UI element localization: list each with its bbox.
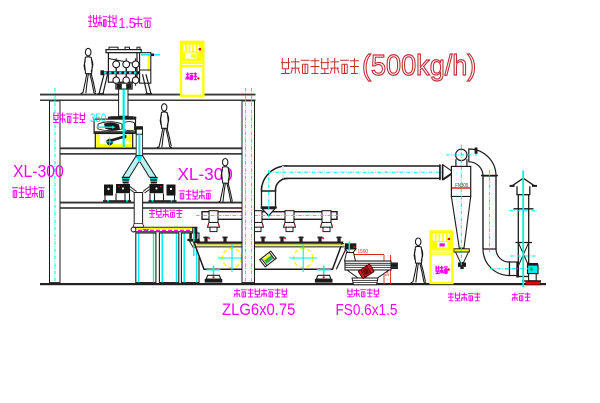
svg-text:350: 350 — [90, 112, 106, 125]
svg-text:FS0.6x1.5: FS0.6x1.5 — [336, 302, 398, 319]
svg-text:XL-300: XL-300 — [13, 161, 64, 181]
svg-text:ZLG6x0.75: ZLG6x0.75 — [222, 301, 296, 319]
svg-text:1.5: 1.5 — [119, 15, 136, 31]
svg-text:(500kg/h): (500kg/h) — [362, 49, 476, 81]
